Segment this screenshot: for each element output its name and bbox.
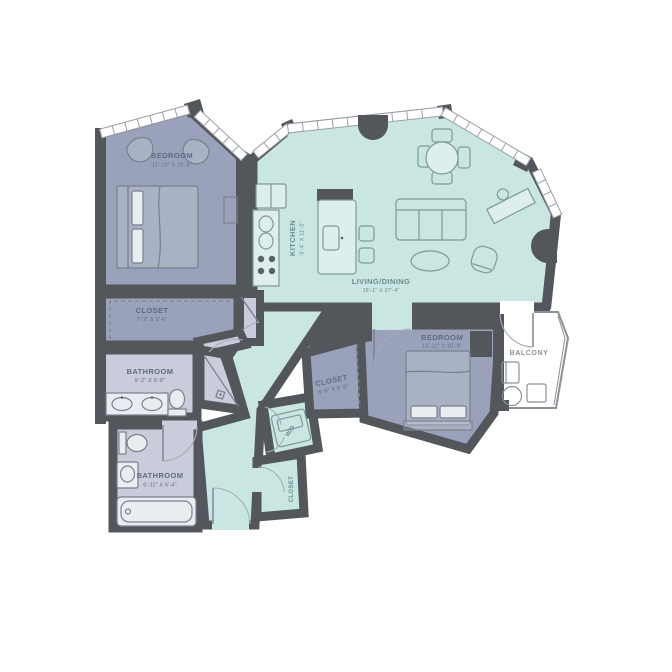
wall-balcony-bottom — [491, 400, 509, 411]
bathroom-2-dims: 6'-11" X 6'-4" — [143, 483, 176, 489]
bathroom-2-label: BATHROOM — [137, 471, 184, 480]
counter-icon — [253, 210, 279, 286]
door-gap — [162, 421, 197, 430]
vanity-icon — [106, 393, 168, 415]
closet-1-label: CLOSET — [136, 306, 169, 315]
door-gap — [372, 300, 412, 330]
bedroom-2-label: BEDROOM — [421, 333, 463, 342]
bedroom-2-dims: 10'-11" X 10'-9" — [422, 344, 462, 350]
bed-icon — [117, 186, 198, 268]
room-closet-3 — [257, 454, 304, 517]
fridge-icon — [256, 184, 286, 208]
bathtub-icon — [117, 497, 196, 526]
bedroom-1-dims: 11'-10" X 15'-5" — [152, 163, 192, 169]
wall-kitchen-bulkhead — [317, 189, 353, 201]
wall-left-outer — [95, 128, 106, 424]
closet-3-label: CLOSET — [289, 476, 295, 503]
balcony-label: BALCONY — [510, 350, 549, 357]
wall-balcony-left — [493, 308, 504, 408]
bedroom-2-furniture — [404, 351, 472, 430]
island-icon — [318, 200, 356, 274]
floor-plan-page: BEDROOM 11'-10" X 15'-5" CLOSET 7'-2" X … — [0, 0, 672, 672]
bathroom-1-label: BATHROOM — [127, 367, 174, 376]
living-dims: 16'-1" X 27'-4" — [362, 288, 399, 294]
entry-door-gap — [212, 520, 249, 530]
wall-bed1-kitchen — [236, 152, 254, 286]
pedestal-sink-icon — [117, 462, 138, 488]
bathroom-1-dims: 9'-2" X 5'-8" — [135, 378, 166, 384]
kitchen-label: KITCHEN — [288, 220, 297, 256]
door-gap — [500, 301, 534, 314]
bed-icon — [404, 351, 472, 430]
door-gap — [252, 468, 262, 492]
bedroom-1-label: BEDROOM — [151, 151, 193, 160]
living-label: LIVING/DINING — [352, 277, 411, 286]
kitchen-dims: 9'-4" X 11'-0" — [300, 221, 306, 254]
room-balcony — [500, 312, 568, 408]
floor-plan: BEDROOM 11'-10" X 15'-5" CLOSET 7'-2" X … — [0, 0, 672, 672]
toilet-icon — [168, 390, 186, 417]
closet-1-dims: 7'-2" X 5'-6" — [137, 317, 168, 323]
wall-bed2-corner — [470, 331, 492, 357]
